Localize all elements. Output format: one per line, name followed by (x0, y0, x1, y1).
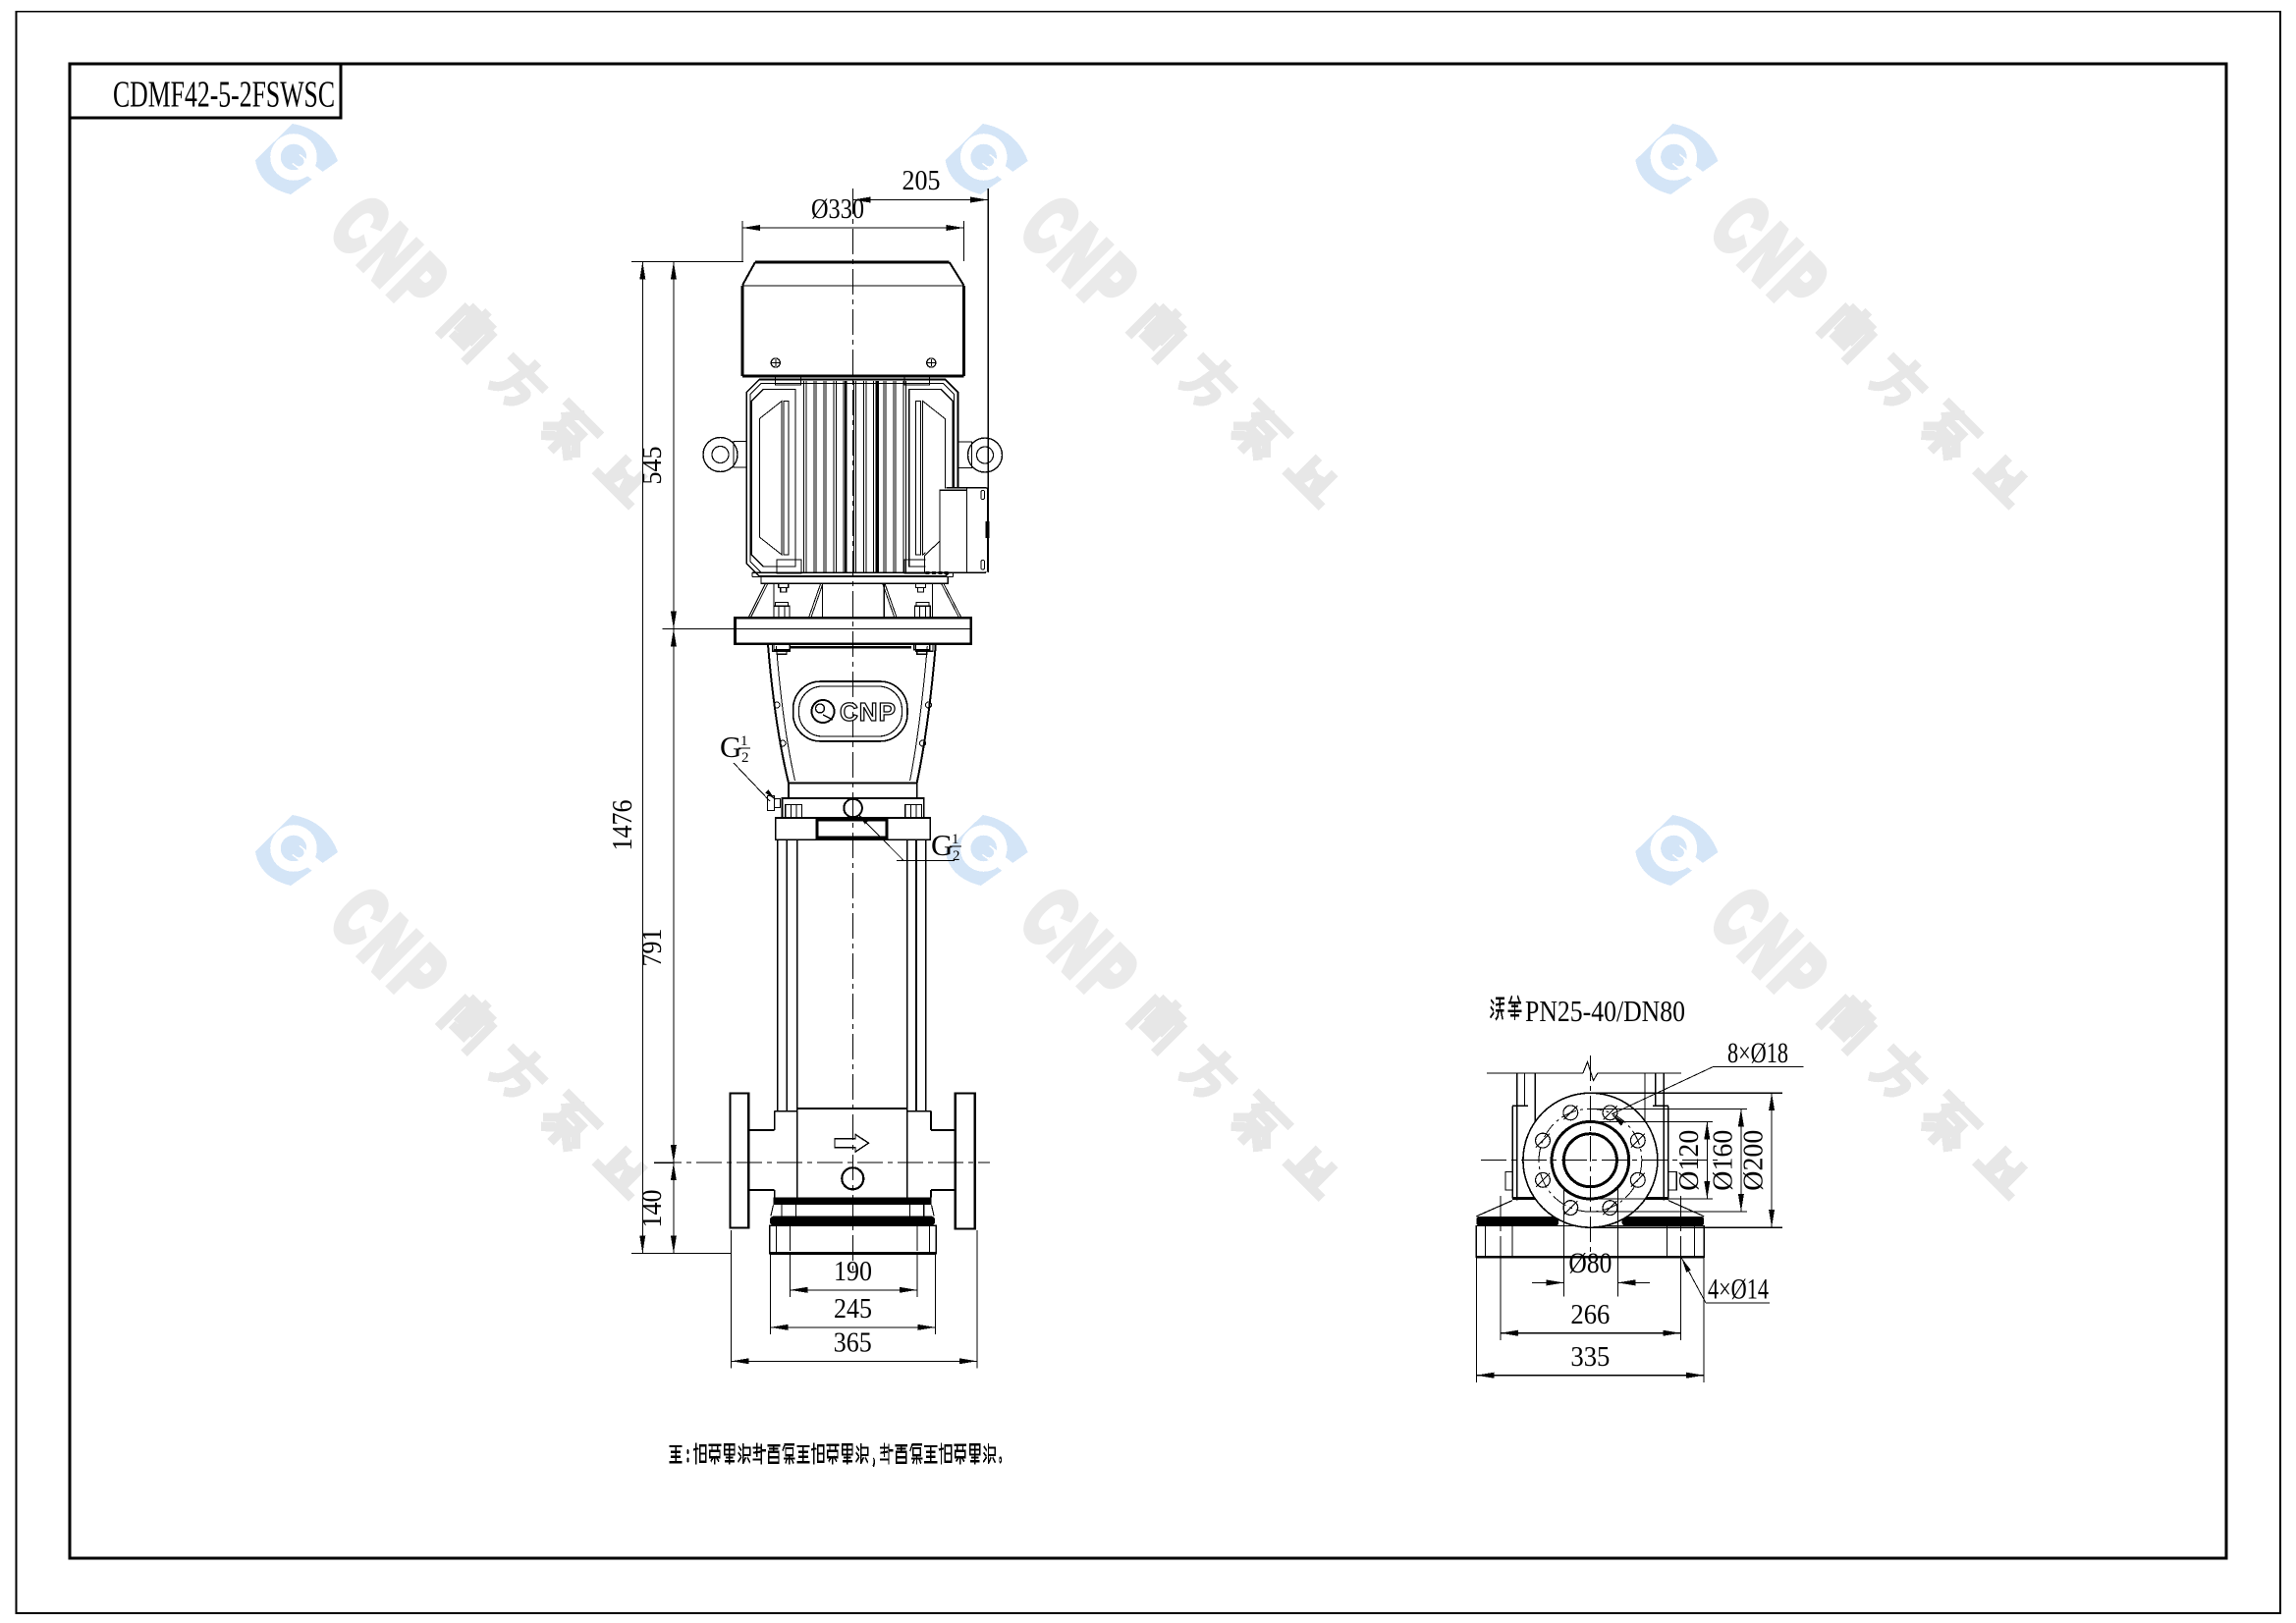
svg-text:PN25-40/DN80: PN25-40/DN80 (1525, 994, 1685, 1028)
svg-text:Ø160: Ø160 (1709, 1130, 1739, 1191)
svg-text:CNP: CNP (840, 697, 897, 727)
svg-text:Ø80: Ø80 (1568, 1247, 1612, 1279)
svg-text:G: G (931, 828, 953, 862)
svg-text:245: 245 (834, 1293, 872, 1325)
svg-text:1: 1 (740, 733, 748, 749)
svg-text:1: 1 (952, 832, 959, 847)
svg-text:266: 266 (1570, 1299, 1610, 1330)
svg-text:140: 140 (636, 1190, 668, 1228)
svg-text:G: G (720, 730, 741, 764)
svg-text:4×Ø14: 4×Ø14 (1708, 1273, 1769, 1306)
svg-text:791: 791 (636, 929, 668, 967)
svg-text:1476: 1476 (607, 800, 638, 851)
svg-text:335: 335 (1570, 1341, 1610, 1373)
svg-text:8×Ø18: 8×Ø18 (1727, 1037, 1788, 1069)
svg-text:190: 190 (834, 1256, 872, 1287)
svg-text:2: 2 (741, 750, 749, 766)
svg-text:CDMF42-5-2FSWSC: CDMF42-5-2FSWSC (113, 75, 335, 116)
svg-text:2: 2 (953, 848, 960, 864)
svg-text:205: 205 (902, 165, 941, 196)
svg-text:365: 365 (834, 1327, 872, 1359)
svg-text:545: 545 (636, 447, 668, 485)
svg-text:Ø330: Ø330 (811, 193, 864, 225)
svg-text:Ø200: Ø200 (1739, 1130, 1770, 1191)
svg-text:Ø120: Ø120 (1674, 1130, 1705, 1191)
